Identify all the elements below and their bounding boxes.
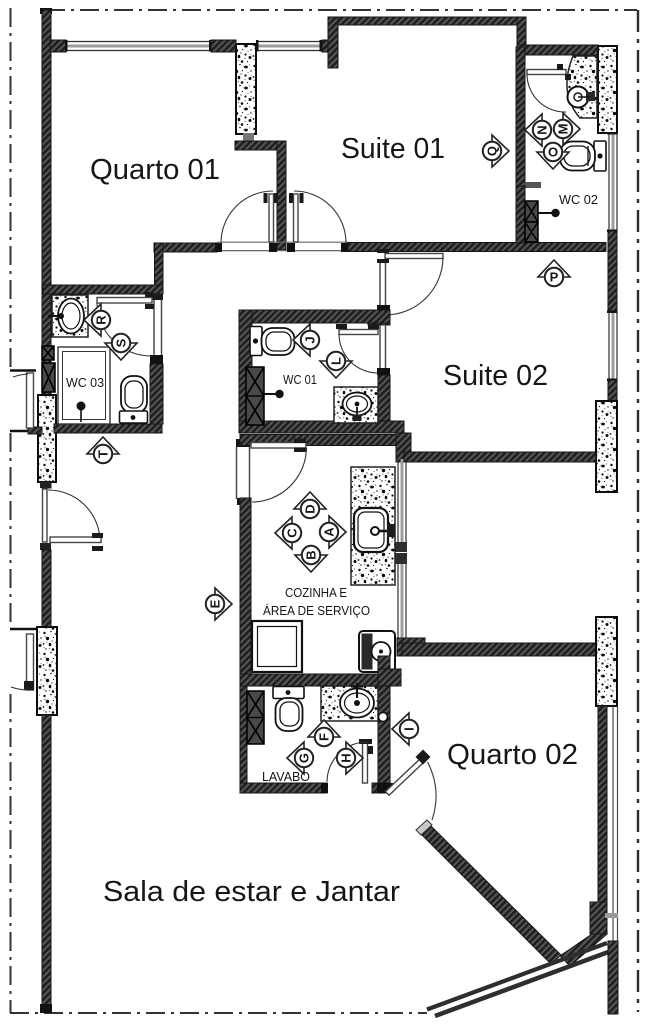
svg-text:A: A [322, 527, 337, 537]
svg-text:J: J [303, 336, 318, 343]
svg-text:WC 02: WC 02 [559, 192, 598, 207]
svg-text:H: H [339, 753, 354, 762]
svg-text:N: N [535, 125, 550, 134]
svg-text:Suite 02: Suite 02 [443, 360, 548, 392]
svg-text:O: O [548, 145, 558, 160]
svg-text:G: G [297, 753, 312, 763]
svg-text:COZINHA E: COZINHA E [285, 585, 347, 600]
svg-text:Q: Q [485, 146, 500, 156]
svg-text:Sala de estar e Jantar: Sala de estar e Jantar [103, 876, 400, 908]
svg-text:P: P [550, 270, 559, 285]
svg-text:WC 03: WC 03 [66, 375, 104, 390]
svg-text:LAVABO: LAVABO [262, 769, 310, 784]
svg-text:B: B [304, 550, 319, 559]
svg-text:I: I [402, 727, 417, 731]
svg-text:E: E [208, 599, 223, 608]
svg-text:WC 01: WC 01 [283, 372, 317, 387]
svg-text:L: L [329, 357, 344, 365]
svg-text:M: M [556, 124, 571, 135]
svg-text:Suite 01: Suite 01 [341, 133, 445, 165]
svg-text:Quarto 01: Quarto 01 [90, 154, 220, 186]
svg-text:T: T [96, 450, 111, 458]
svg-text:ÁREA DE SERVIÇO: ÁREA DE SERVIÇO [263, 603, 370, 618]
svg-text:C: C [285, 528, 300, 538]
svg-text:S: S [114, 338, 129, 347]
svg-text:R: R [94, 315, 109, 325]
svg-text:Quarto 02: Quarto 02 [447, 739, 578, 771]
svg-text:F: F [317, 733, 332, 741]
svg-text:D: D [303, 504, 318, 513]
